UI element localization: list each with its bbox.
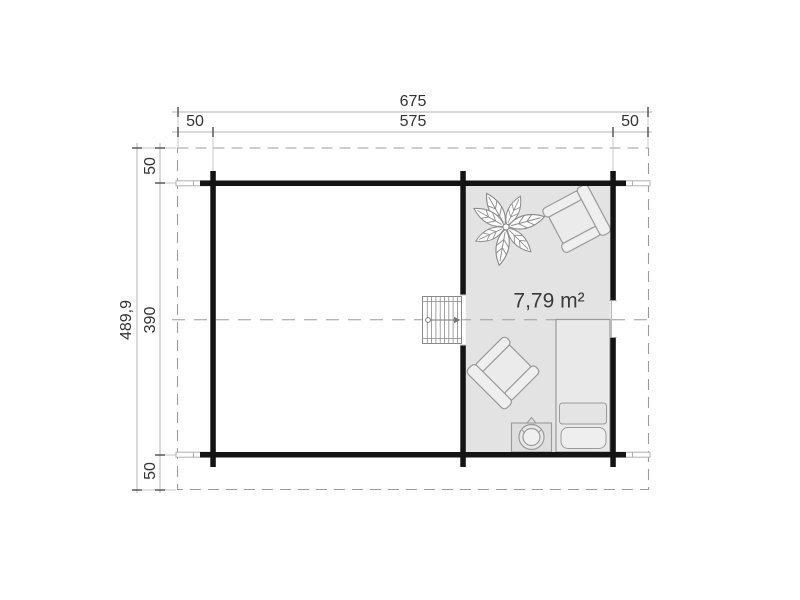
exterior-wall-right-upper xyxy=(610,171,616,300)
floor-plan: 675 575 50 50 489,9 390 50 50 7,79 m² xyxy=(0,0,800,600)
staircase-icon xyxy=(423,297,462,344)
dim-overhang-right-label: 50 xyxy=(621,114,639,130)
exterior-wall-left xyxy=(210,171,216,467)
bed-icon xyxy=(556,320,610,453)
dim-inner-depth-label: 390 xyxy=(143,307,159,334)
dim-overhang-top-label: 50 xyxy=(143,157,159,175)
dim-overhang-left-label: 50 xyxy=(186,114,204,130)
dim-total-width-label: 675 xyxy=(400,94,427,110)
exterior-wall-right-lower xyxy=(610,338,616,467)
dim-total-depth-label: 489,9 xyxy=(119,300,135,340)
exterior-wall-bottom xyxy=(200,452,626,458)
dim-overhang-bottom-label: 50 xyxy=(143,462,159,480)
partition-wall-upper xyxy=(460,171,466,295)
dim-inner-width-label: 575 xyxy=(400,114,427,130)
exterior-wall-top xyxy=(200,181,626,187)
room-area-label: 7,79 m² xyxy=(513,291,584,312)
stove-icon xyxy=(512,418,552,453)
partition-wall-lower xyxy=(460,346,466,468)
